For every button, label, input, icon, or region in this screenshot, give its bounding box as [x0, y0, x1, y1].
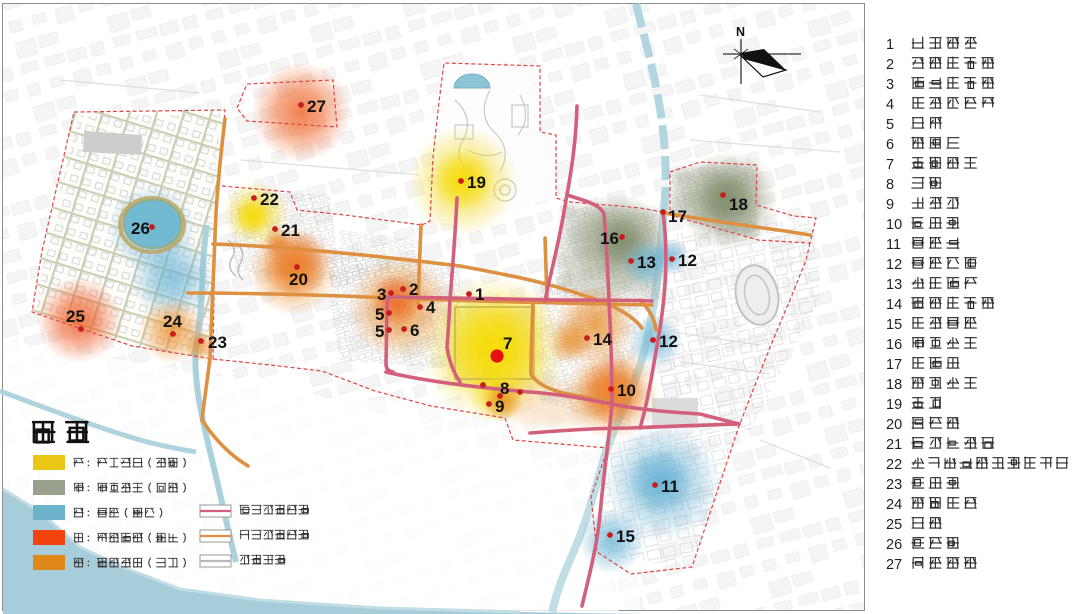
svg-text:16: 16 [600, 229, 619, 248]
svg-text:10: 10 [886, 217, 902, 233]
svg-text:26: 26 [886, 537, 902, 553]
svg-text:26: 26 [131, 219, 150, 238]
svg-text:21: 21 [886, 437, 902, 453]
svg-text:1: 1 [475, 285, 484, 304]
svg-text:20: 20 [886, 417, 902, 433]
svg-text:23: 23 [208, 333, 227, 352]
svg-text:4: 4 [426, 298, 436, 317]
svg-text:15: 15 [886, 317, 902, 333]
svg-text:2: 2 [409, 280, 418, 299]
svg-text:18: 18 [729, 195, 748, 214]
svg-text:17: 17 [886, 357, 902, 373]
svg-text:3: 3 [886, 77, 894, 93]
svg-text:19: 19 [467, 173, 486, 192]
svg-text:24: 24 [163, 312, 182, 331]
svg-text:15: 15 [616, 527, 635, 546]
svg-text:21: 21 [281, 221, 300, 240]
svg-text:2: 2 [886, 57, 894, 73]
svg-text:19: 19 [886, 397, 902, 413]
svg-text:4: 4 [886, 97, 894, 113]
svg-text:22: 22 [260, 190, 279, 209]
svg-text:22: 22 [886, 457, 902, 473]
svg-text:1: 1 [886, 37, 894, 53]
svg-text:3: 3 [377, 285, 386, 304]
svg-text:5: 5 [375, 322, 384, 341]
svg-text:25: 25 [886, 517, 902, 533]
svg-text:7: 7 [886, 157, 894, 173]
svg-text:12: 12 [659, 332, 678, 351]
svg-text:25: 25 [66, 307, 85, 326]
svg-text:23: 23 [886, 477, 902, 493]
svg-text:20: 20 [289, 270, 308, 289]
svg-text:7: 7 [503, 334, 512, 353]
svg-text:13: 13 [637, 253, 656, 272]
svg-text:27: 27 [886, 557, 902, 573]
svg-text:24: 24 [886, 497, 902, 513]
svg-text:6: 6 [886, 137, 894, 153]
svg-text:14: 14 [593, 330, 612, 349]
svg-text:N: N [736, 25, 745, 39]
svg-text:11: 11 [661, 477, 679, 496]
svg-text:6: 6 [410, 321, 419, 340]
svg-text:5: 5 [886, 117, 894, 133]
svg-text:8: 8 [886, 177, 894, 193]
svg-text:17: 17 [668, 207, 687, 226]
svg-text:18: 18 [886, 377, 902, 393]
svg-text:12: 12 [886, 257, 902, 273]
svg-text:16: 16 [886, 337, 902, 353]
svg-text:27: 27 [307, 97, 326, 116]
svg-text:9: 9 [886, 197, 894, 213]
svg-text:13: 13 [886, 277, 902, 293]
svg-text:10: 10 [617, 381, 636, 400]
svg-text:9: 9 [495, 397, 504, 416]
svg-text:11: 11 [886, 237, 901, 253]
svg-text:14: 14 [886, 297, 902, 313]
svg-text:12: 12 [678, 251, 697, 270]
